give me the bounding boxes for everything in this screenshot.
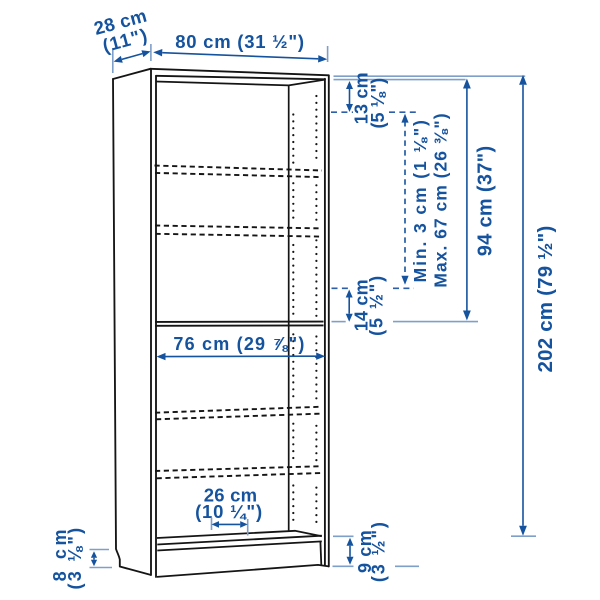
svg-text:(10 ¼"): (10 ¼") — [195, 501, 263, 522]
svg-text:(5 ⅛"): (5 ⅛") — [368, 78, 388, 129]
svg-text:94 cm (37"): 94 cm (37") — [475, 146, 497, 257]
svg-text:76 cm (29 ⅞"): 76 cm (29 ⅞") — [173, 334, 305, 354]
svg-text:(3 ½"): (3 ½") — [369, 520, 389, 582]
svg-text:(5 ½"): (5 ½") — [367, 274, 387, 336]
svg-text:Max. 67 cm (26 ⅜"): Max. 67 cm (26 ⅜") — [430, 112, 450, 287]
svg-text:202 cm (79 ½"): 202 cm (79 ½") — [534, 226, 557, 373]
svg-text:Min. 3 cm (1 ⅛"): Min. 3 cm (1 ⅛") — [410, 118, 430, 282]
svg-text:80 cm (31 ½"): 80 cm (31 ½") — [175, 31, 305, 52]
svg-text:(3 ⅛"): (3 ⅛") — [65, 526, 85, 590]
